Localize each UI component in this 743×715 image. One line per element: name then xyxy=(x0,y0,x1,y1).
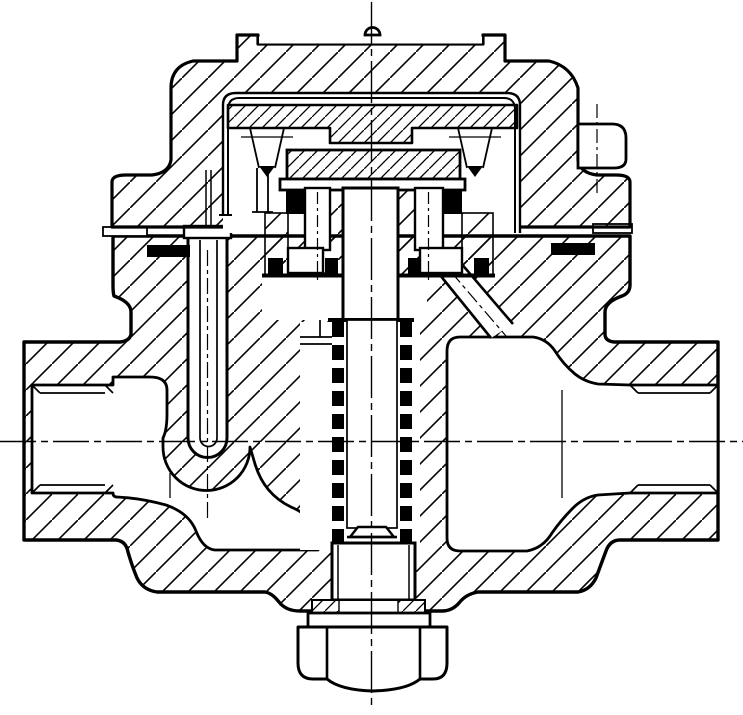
seat-web-left xyxy=(330,190,343,248)
cap-gasket-right xyxy=(551,243,595,255)
drawing-canvas: Sectional engineering drawing of a therm… xyxy=(0,0,743,715)
cap-vent-bump xyxy=(365,28,380,35)
plug-flange xyxy=(308,613,430,627)
screen-bar-left xyxy=(332,322,344,543)
seat-gasket-3 xyxy=(408,258,421,274)
seat-gasket-2 xyxy=(325,258,338,274)
plug-gasket-hatch-right xyxy=(398,600,425,613)
cap-lid-plate xyxy=(259,37,482,44)
seal-ring-left xyxy=(286,189,305,214)
stem-bolt-upper xyxy=(343,188,398,320)
plug-shank xyxy=(332,543,415,600)
seat-gasket-1 xyxy=(268,258,283,274)
steam-trap-section-drawing xyxy=(0,0,743,715)
seal-ring-right xyxy=(443,189,462,214)
disc xyxy=(287,150,460,179)
plug-gasket-hatch-left xyxy=(312,600,339,613)
cap-gasket-left xyxy=(147,245,190,257)
seat-gasket-4 xyxy=(474,258,489,274)
seat-block-right xyxy=(420,248,462,273)
plug-hexagon xyxy=(298,627,447,691)
side-lug xyxy=(578,124,626,168)
screen-bar-right xyxy=(400,322,412,543)
seat-web-right xyxy=(398,190,415,248)
